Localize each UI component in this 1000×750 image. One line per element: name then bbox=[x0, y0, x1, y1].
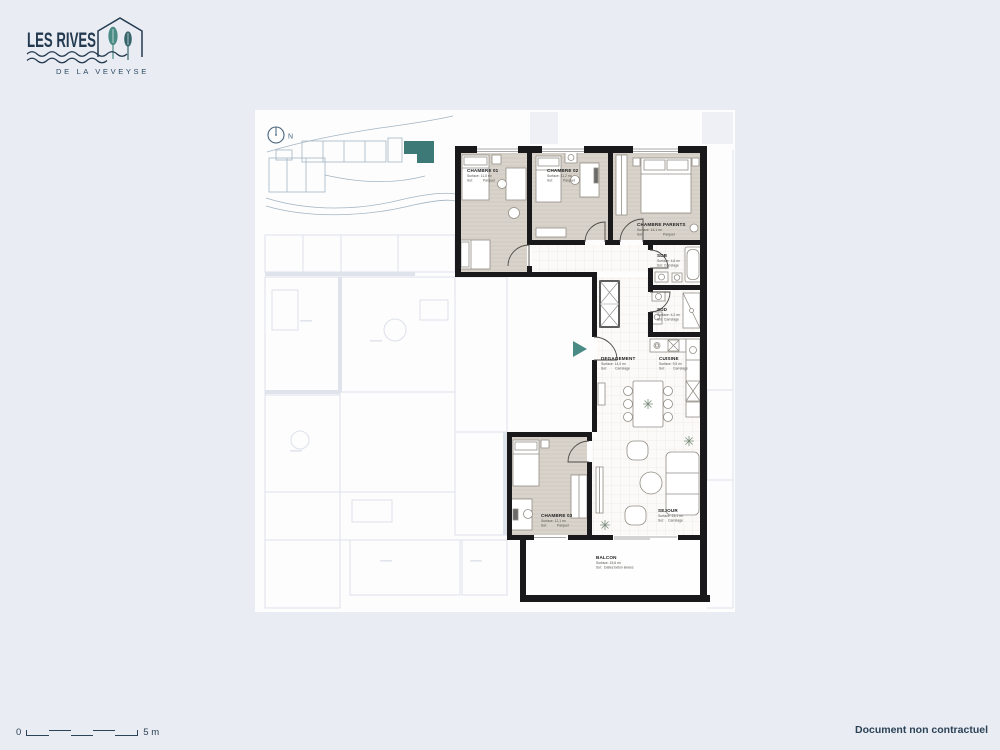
svg-text:Surface: 4,6 m²: Surface: 4,6 m² bbox=[657, 259, 681, 263]
technical-shaft bbox=[600, 281, 619, 327]
svg-text:Surface: 11,0 m²: Surface: 11,0 m² bbox=[467, 174, 493, 178]
house-trees-icon bbox=[98, 18, 142, 60]
svg-text:Parquet: Parquet bbox=[557, 524, 569, 528]
svg-text:Dalles béton lavées: Dalles béton lavées bbox=[604, 566, 634, 570]
floor-plan: N bbox=[255, 110, 735, 612]
svg-text:Parquet: Parquet bbox=[483, 179, 495, 183]
plant-icon bbox=[600, 520, 610, 530]
svg-text:SDB: SDB bbox=[657, 253, 668, 258]
svg-text:Sol:: Sol: bbox=[596, 566, 602, 570]
scale-segment bbox=[93, 730, 115, 736]
scale-segment bbox=[49, 730, 71, 736]
svg-text:CHAMBRE 02: CHAMBRE 02 bbox=[547, 168, 579, 173]
svg-text:Sol:: Sol: bbox=[657, 264, 663, 268]
svg-text:Carrelage: Carrelage bbox=[673, 367, 688, 371]
svg-text:Parquet: Parquet bbox=[663, 233, 675, 237]
scale-segment bbox=[71, 730, 93, 736]
dining-table bbox=[624, 381, 673, 427]
brand-name: LES RIVES bbox=[27, 29, 96, 52]
svg-text:Sol:: Sol: bbox=[658, 519, 664, 523]
svg-text:Carrelage: Carrelage bbox=[615, 367, 630, 371]
svg-text:Surface: 12,1 m²: Surface: 12,1 m² bbox=[541, 519, 567, 523]
svg-text:Sol:: Sol: bbox=[467, 179, 473, 183]
svg-text:CHAMBRE 03: CHAMBRE 03 bbox=[541, 513, 573, 518]
hall-floor bbox=[532, 245, 648, 272]
svg-text:Parquet: Parquet bbox=[563, 179, 575, 183]
svg-text:Surface: 14,0 m²: Surface: 14,0 m² bbox=[601, 362, 627, 366]
scale-segment bbox=[115, 730, 137, 736]
svg-text:BALCON: BALCON bbox=[596, 555, 617, 560]
armchair bbox=[625, 506, 646, 525]
page: LES RIVES DE LA VEVEYSE bbox=[0, 0, 1000, 750]
scale-five-label: 5 m bbox=[143, 727, 159, 738]
svg-text:Sol:: Sol: bbox=[659, 367, 665, 371]
svg-text:Sol:: Sol: bbox=[541, 524, 547, 528]
waves-icon bbox=[27, 52, 127, 63]
brand-logo: LES RIVES DE LA VEVEYSE bbox=[12, 4, 172, 88]
scale-bar: 0 5 m bbox=[16, 727, 159, 738]
svg-text:Surface: 11,2 m²: Surface: 11,2 m² bbox=[547, 174, 573, 178]
sofa bbox=[666, 452, 699, 515]
armchair bbox=[627, 441, 648, 460]
scale-bar-graphic bbox=[26, 730, 138, 736]
compass-north-label: N bbox=[288, 134, 293, 141]
svg-text:SEJOUR: SEJOUR bbox=[658, 508, 678, 513]
coffee-table bbox=[640, 472, 662, 494]
plant-icon bbox=[684, 436, 694, 446]
svg-text:Carrelage: Carrelage bbox=[664, 318, 679, 322]
svg-text:Surface: 9,5 m²: Surface: 9,5 m² bbox=[659, 362, 683, 366]
svg-text:CUISINE: CUISINE bbox=[659, 356, 679, 361]
svg-text:Sol:: Sol: bbox=[547, 179, 553, 183]
svg-text:Surface: 14,1 m²: Surface: 14,1 m² bbox=[637, 228, 663, 232]
scale-zero-label: 0 bbox=[16, 727, 21, 738]
svg-text:Carrelage: Carrelage bbox=[664, 264, 679, 268]
disclaimer-text: Document non contractuel bbox=[855, 724, 988, 736]
svg-text:Sol:: Sol: bbox=[637, 233, 643, 237]
svg-text:SDD: SDD bbox=[657, 307, 668, 312]
brand-subtitle: DE LA VEVEYSE bbox=[56, 67, 149, 76]
svg-text:Carrelage: Carrelage bbox=[668, 519, 683, 523]
svg-text:CHAMBRE 01: CHAMBRE 01 bbox=[467, 168, 499, 173]
svg-text:Surface: 23,1 m²: Surface: 23,1 m² bbox=[658, 514, 684, 518]
scale-segment bbox=[27, 730, 49, 736]
svg-text:DEGAGEMENT: DEGAGEMENT bbox=[601, 356, 635, 361]
svg-text:Surface: 4,2 m²: Surface: 4,2 m² bbox=[657, 313, 681, 317]
svg-text:Sol:: Sol: bbox=[657, 318, 663, 322]
svg-text:Sol:: Sol: bbox=[601, 367, 607, 371]
svg-text:CHAMBRE PARENTS: CHAMBRE PARENTS bbox=[637, 222, 686, 227]
svg-text:Surface: 15,6 m²: Surface: 15,6 m² bbox=[596, 561, 622, 565]
